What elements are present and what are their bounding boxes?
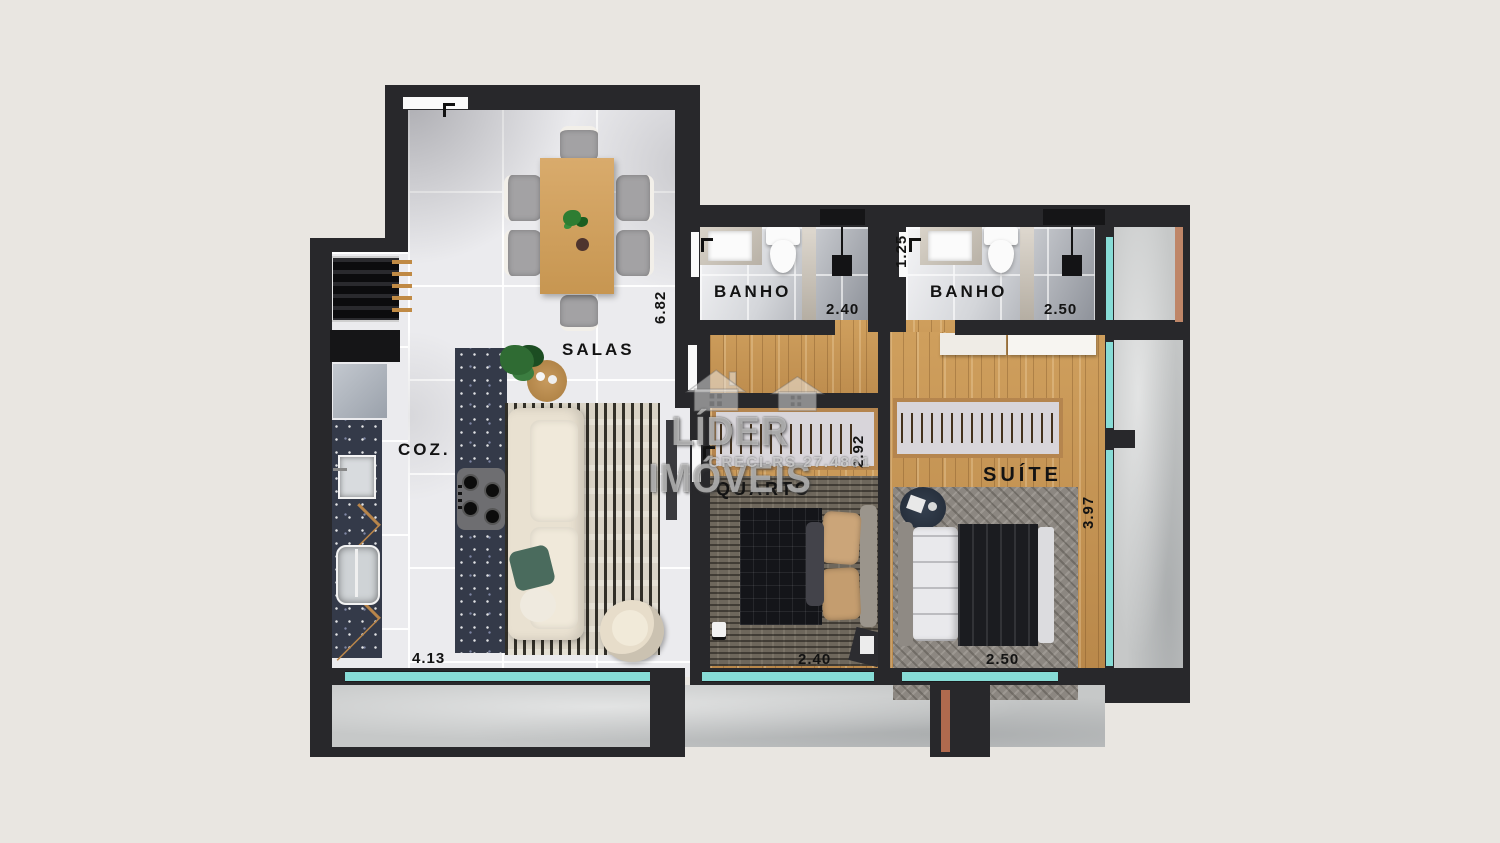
dining-chair-left-1 bbox=[504, 175, 542, 221]
dim-suite-width: 2.50 bbox=[986, 651, 1019, 668]
window-suite-side-upper bbox=[1106, 342, 1113, 428]
banho1-shower-head bbox=[832, 255, 852, 276]
dim-quarto-width: 2.40 bbox=[798, 651, 831, 668]
quarto-socket bbox=[712, 622, 726, 640]
wall-right-stub-mid bbox=[1105, 430, 1135, 448]
banho1-niche bbox=[820, 209, 865, 225]
banho2-niche bbox=[1043, 209, 1105, 225]
door-salas-hall bbox=[688, 345, 697, 390]
floor-plant bbox=[500, 345, 534, 375]
suite-blanket-edge bbox=[1038, 527, 1054, 643]
banho1-shower-divider bbox=[802, 227, 816, 320]
kitchen-niche bbox=[330, 330, 400, 362]
churrasqueira-grill bbox=[328, 256, 399, 322]
suite-dresser-left bbox=[940, 333, 1006, 355]
quarto-pillow-dark bbox=[806, 522, 824, 606]
quarto-pillow-2 bbox=[821, 567, 862, 621]
label-quarto: QUARTO bbox=[716, 479, 812, 500]
suite-bed-headboard bbox=[898, 522, 913, 646]
wall-salas-left-upper bbox=[385, 85, 408, 252]
wall-quarto-top bbox=[697, 393, 890, 408]
dim-quarto-depth: 2.92 bbox=[850, 422, 867, 468]
label-banho2: BANHO bbox=[930, 282, 1007, 302]
pillar-balcony-left bbox=[650, 668, 685, 757]
wall-bottom-outer bbox=[310, 747, 685, 757]
armchair-seat bbox=[612, 610, 648, 646]
dim-banho2-entry: 1.25 bbox=[893, 226, 910, 268]
banho2-sink bbox=[928, 231, 972, 261]
window-suite bbox=[902, 672, 1058, 681]
table-bowl bbox=[576, 238, 589, 251]
pillar-balcony-right bbox=[930, 668, 990, 757]
wall-right-balcony-bottom bbox=[1105, 668, 1190, 703]
sofa-pillow-cream bbox=[520, 588, 556, 622]
wall-left-outer bbox=[310, 238, 332, 757]
label-salas: SALAS bbox=[562, 340, 635, 360]
dim-salas-width: 4.13 bbox=[412, 650, 445, 667]
quarto-pillow-1 bbox=[820, 511, 862, 566]
wall-banho-top bbox=[675, 205, 1190, 227]
window-banho2-side bbox=[1106, 237, 1113, 320]
door-banho1 bbox=[691, 232, 699, 277]
dim-suite-depth: 3.97 bbox=[1080, 483, 1097, 529]
dining-chair-right-1 bbox=[616, 175, 654, 221]
burner-2 bbox=[484, 482, 501, 499]
quarto-nightstand-book bbox=[860, 636, 874, 654]
dim-banho1-width: 2.40 bbox=[826, 301, 859, 318]
wall-quarto-left bbox=[690, 393, 710, 672]
cooktop-knobs bbox=[458, 485, 462, 511]
wall-below-banho2 bbox=[955, 320, 1105, 335]
label-banho1: BANHO bbox=[714, 282, 791, 302]
label-cozinha: COZ. bbox=[398, 440, 451, 460]
tv-panel bbox=[666, 420, 677, 520]
dim-banho2-width: 2.50 bbox=[1044, 301, 1077, 318]
side-table-cups bbox=[536, 372, 545, 381]
wall-right-outer bbox=[1183, 205, 1190, 703]
quarto-bed-headboard bbox=[860, 505, 877, 627]
entrance-door bbox=[403, 97, 468, 109]
window-suite-side-lower bbox=[1106, 450, 1113, 666]
entrance-door-mark bbox=[443, 103, 455, 117]
window-salas bbox=[345, 672, 650, 681]
suite-table-cup bbox=[928, 502, 937, 511]
suite-closet-hangers bbox=[901, 413, 1055, 443]
sink-divider bbox=[355, 549, 358, 597]
dining-chair-left-2 bbox=[504, 230, 542, 276]
suite-bed-duvet bbox=[958, 524, 1038, 646]
door-quarto bbox=[692, 440, 701, 482]
kitchen-faucet bbox=[333, 468, 347, 471]
quarto-closet-hangers bbox=[720, 424, 860, 454]
suite-pillows bbox=[913, 527, 958, 641]
burner-1 bbox=[462, 474, 479, 491]
side-table bbox=[527, 360, 567, 402]
sofa-cushion-1 bbox=[530, 420, 578, 522]
terracotta-strip-bottom bbox=[941, 690, 950, 752]
door-banho1-mark bbox=[701, 238, 713, 252]
terracotta-strip-top bbox=[1175, 227, 1183, 322]
label-suite: SUÍTE bbox=[983, 464, 1062, 487]
wall-quarto-suite-divider bbox=[878, 332, 890, 672]
burner-4 bbox=[484, 508, 501, 525]
kitchen-sink-double bbox=[336, 545, 380, 605]
suite-dresser-right bbox=[1008, 333, 1096, 355]
banho1-sink bbox=[708, 231, 752, 261]
burner-3 bbox=[462, 500, 479, 517]
banho2-shower-head bbox=[1062, 255, 1082, 276]
fridge bbox=[333, 364, 387, 418]
dining-chair-right-2 bbox=[616, 230, 654, 276]
dining-table bbox=[540, 158, 614, 294]
floor-plan-render: SALAS COZ. BANHO BANHO QUARTO SUÍTE 6.82… bbox=[0, 0, 1500, 843]
right-balcony-floor bbox=[1114, 227, 1183, 703]
door-quarto-mark bbox=[703, 446, 715, 460]
kitchen-sink-prep bbox=[338, 455, 376, 499]
dining-chair-top bbox=[560, 126, 598, 162]
door-banho2-mark bbox=[909, 238, 921, 252]
grill-skewer-handles bbox=[392, 260, 412, 316]
banho2-shower-divider bbox=[1020, 227, 1034, 320]
window-quarto bbox=[702, 672, 874, 681]
dining-chair-bottom bbox=[560, 295, 598, 331]
dim-salas-depth: 6.82 bbox=[652, 278, 669, 324]
wall-right-stub-upper bbox=[1105, 320, 1190, 340]
